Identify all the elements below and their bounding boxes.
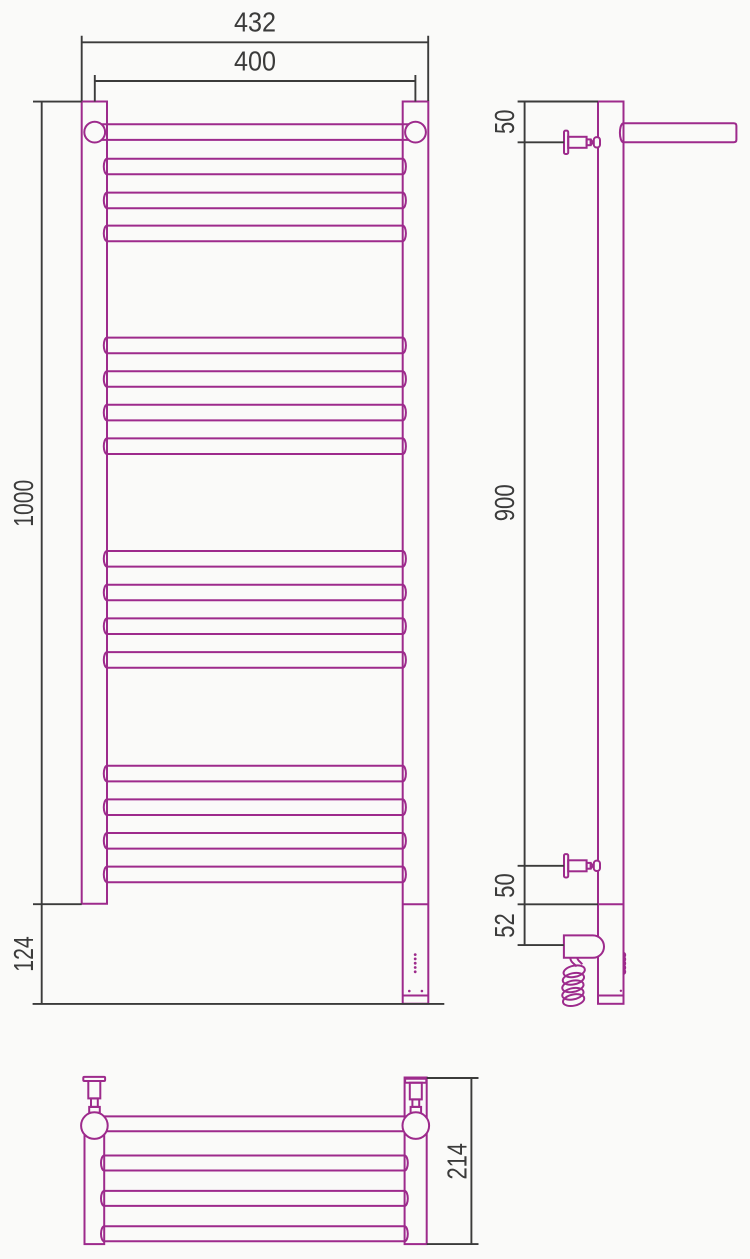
svg-text:1000: 1000	[8, 480, 39, 527]
svg-text:50: 50	[489, 873, 520, 898]
svg-text:214: 214	[442, 1143, 473, 1180]
svg-text:400: 400	[234, 45, 276, 76]
svg-text:900: 900	[489, 484, 520, 521]
svg-text:50: 50	[489, 110, 520, 135]
svg-text:432: 432	[234, 7, 276, 38]
svg-text:52: 52	[489, 913, 520, 938]
svg-text:124: 124	[8, 936, 39, 972]
